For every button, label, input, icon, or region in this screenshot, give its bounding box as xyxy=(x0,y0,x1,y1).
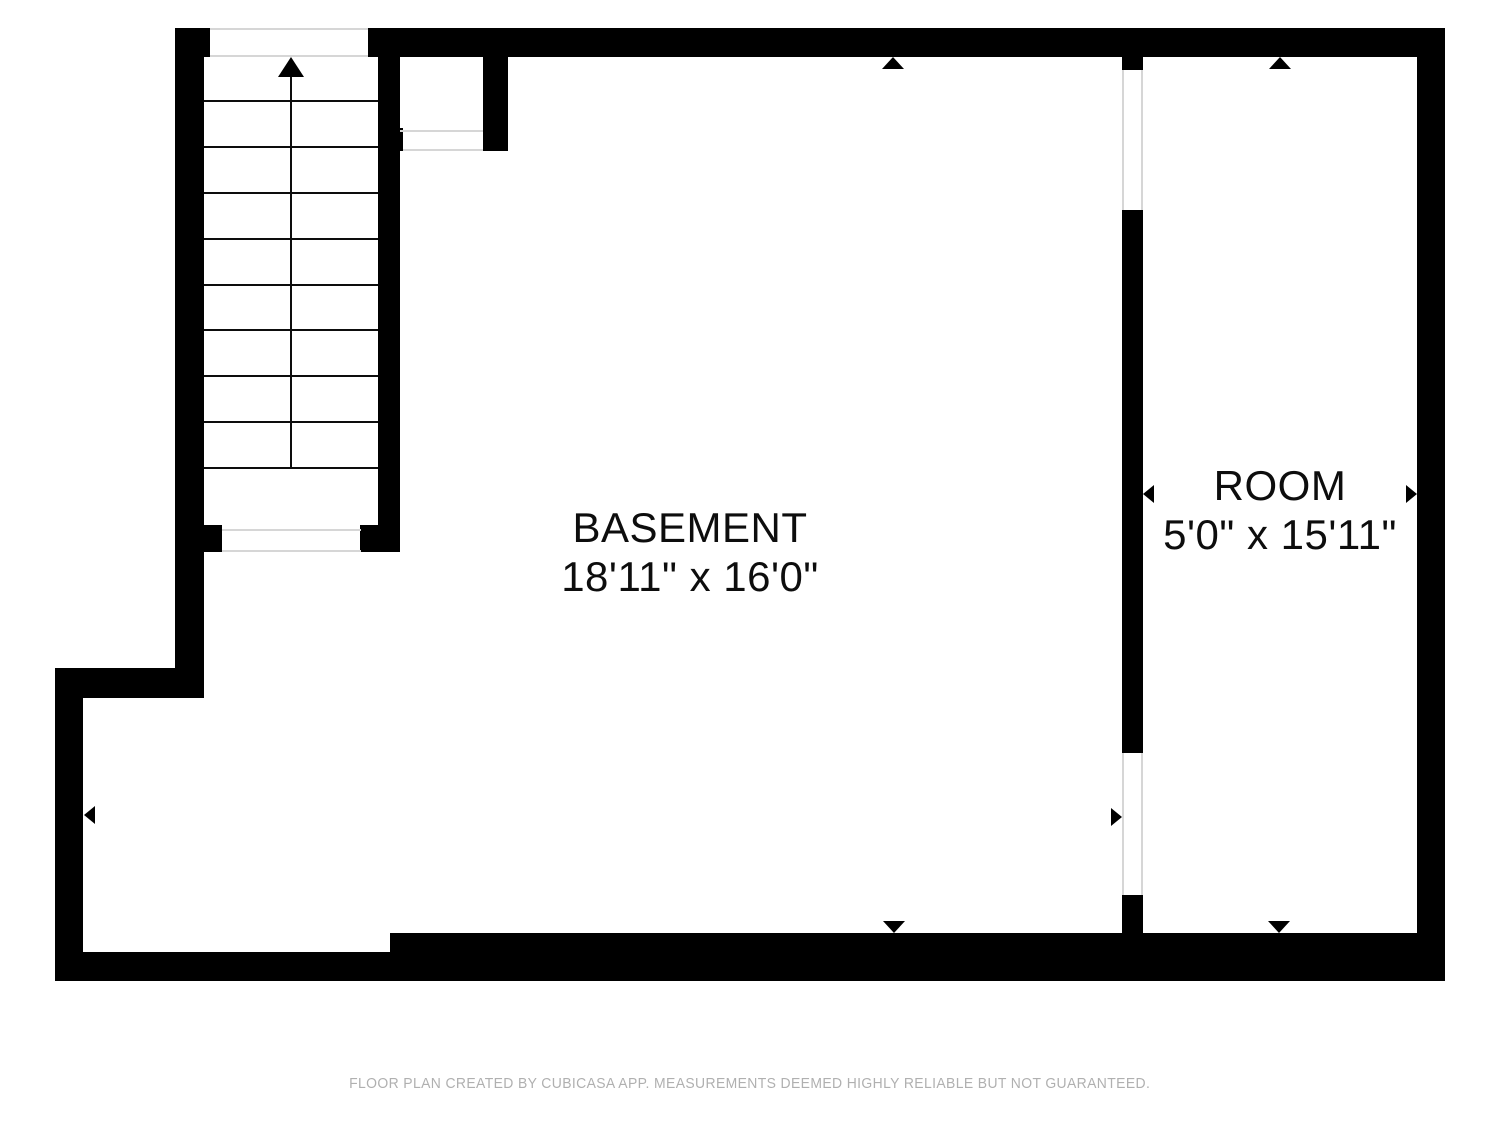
dimension-arrow-left-basement-icon xyxy=(84,806,95,824)
stair-tread xyxy=(204,467,378,469)
opening-closet-bottom xyxy=(403,149,483,151)
dimension-arrow-up-room-icon xyxy=(1269,57,1291,69)
basement-dimensions: 18'11" x 16'0" xyxy=(440,552,940,601)
wall-left-lower xyxy=(55,668,83,981)
floor-plan-canvas: BASEMENT 18'11" x 16'0" ROOM 5'0" x 15'1… xyxy=(0,0,1500,1125)
room-name: ROOM xyxy=(1030,461,1500,510)
opening-stair-door-bottom xyxy=(222,550,361,552)
opening-divider-lower-left xyxy=(1122,753,1124,895)
wall-bottom-right xyxy=(390,933,1445,981)
wall-divider-top-stub xyxy=(1122,57,1143,70)
opening-stair-top-outer xyxy=(210,28,368,30)
footer-disclaimer: FLOOR PLAN CREATED BY CUBICASA APP. MEAS… xyxy=(0,1075,1500,1092)
dimension-arrow-down-room-icon xyxy=(1268,921,1290,933)
basement-label: BASEMENT 18'11" x 16'0" xyxy=(440,503,940,601)
room-dimensions: 5'0" x 15'11" xyxy=(1030,510,1500,559)
opening-divider-upper-left xyxy=(1122,70,1124,210)
stairs-direction-line xyxy=(290,75,292,467)
wall-left-step xyxy=(55,668,204,698)
footer-disclaimer-text: FLOOR PLAN CREATED BY CUBICASA APP. MEAS… xyxy=(349,1075,1150,1092)
wall-stair-door-stub-right xyxy=(360,525,400,552)
opening-closet-top xyxy=(400,130,483,132)
basement-name: BASEMENT xyxy=(440,503,940,552)
opening-stair-door-top xyxy=(222,529,361,531)
stairs-up-arrow-icon xyxy=(278,57,304,77)
dimension-arrow-right-basement-icon xyxy=(1111,808,1122,826)
opening-divider-upper-right xyxy=(1141,70,1143,210)
opening-divider-lower-right xyxy=(1141,753,1143,895)
wall-bottom-left xyxy=(55,952,400,981)
room-label: ROOM 5'0" x 15'11" xyxy=(1030,461,1500,559)
wall-left-upper xyxy=(175,28,204,698)
wall-stair-door-stub-left xyxy=(204,525,222,552)
dimension-arrow-down-basement-icon xyxy=(883,921,905,933)
dimension-arrow-up-basement-icon xyxy=(882,57,904,69)
wall-closet-right xyxy=(483,57,508,151)
wall-divider-bottom-stub xyxy=(1122,895,1143,933)
wall-top-main xyxy=(368,28,1445,57)
